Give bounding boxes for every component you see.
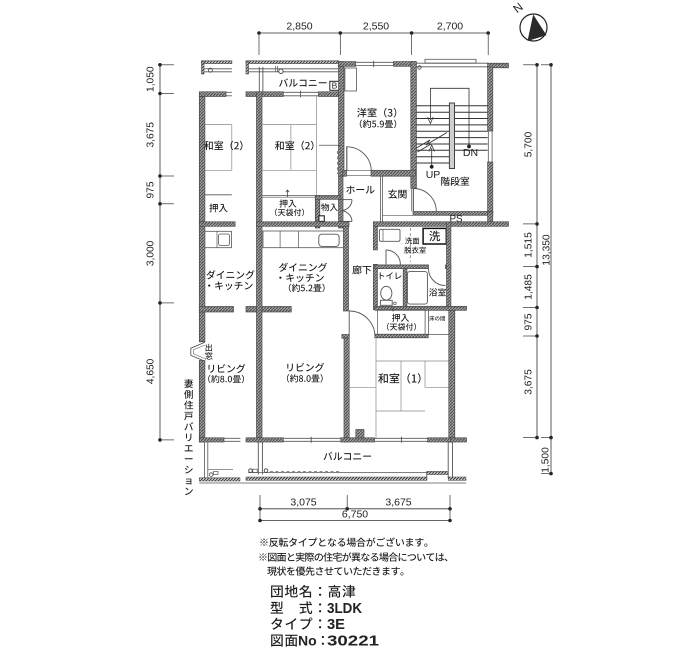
svg-text:N: N [510, 0, 525, 16]
svg-text:3LDK: 3LDK [327, 601, 362, 617]
svg-text:UP: UP [426, 169, 441, 181]
svg-text:1,050: 1,050 [146, 66, 157, 92]
svg-text:2,850: 2,850 [286, 21, 312, 33]
svg-text:975: 975 [146, 181, 157, 198]
svg-text:4,650: 4,650 [146, 358, 157, 384]
svg-text:13,350: 13,350 [542, 234, 553, 265]
svg-text:3E: 3E [327, 617, 345, 633]
svg-text:B: B [332, 80, 338, 90]
svg-text:975: 975 [524, 313, 535, 330]
svg-text:30221: 30221 [327, 634, 379, 650]
svg-text:2,550: 2,550 [363, 21, 389, 33]
svg-text:6,750: 6,750 [342, 509, 368, 521]
svg-text:No: No [298, 633, 317, 649]
svg-text:1,500: 1,500 [541, 447, 552, 473]
svg-text:3,000: 3,000 [146, 240, 157, 266]
svg-text:3,675: 3,675 [146, 122, 157, 148]
svg-text:3,675: 3,675 [385, 497, 411, 509]
svg-text:3,075: 3,075 [290, 497, 316, 509]
svg-text:1,515: 1,515 [524, 232, 535, 258]
svg-text:DN: DN [463, 147, 478, 159]
svg-text:2,700: 2,700 [437, 21, 463, 33]
svg-text:5,700: 5,700 [524, 131, 535, 157]
svg-text:3,675: 3,675 [524, 369, 535, 395]
svg-text:1,485: 1,485 [524, 274, 535, 300]
